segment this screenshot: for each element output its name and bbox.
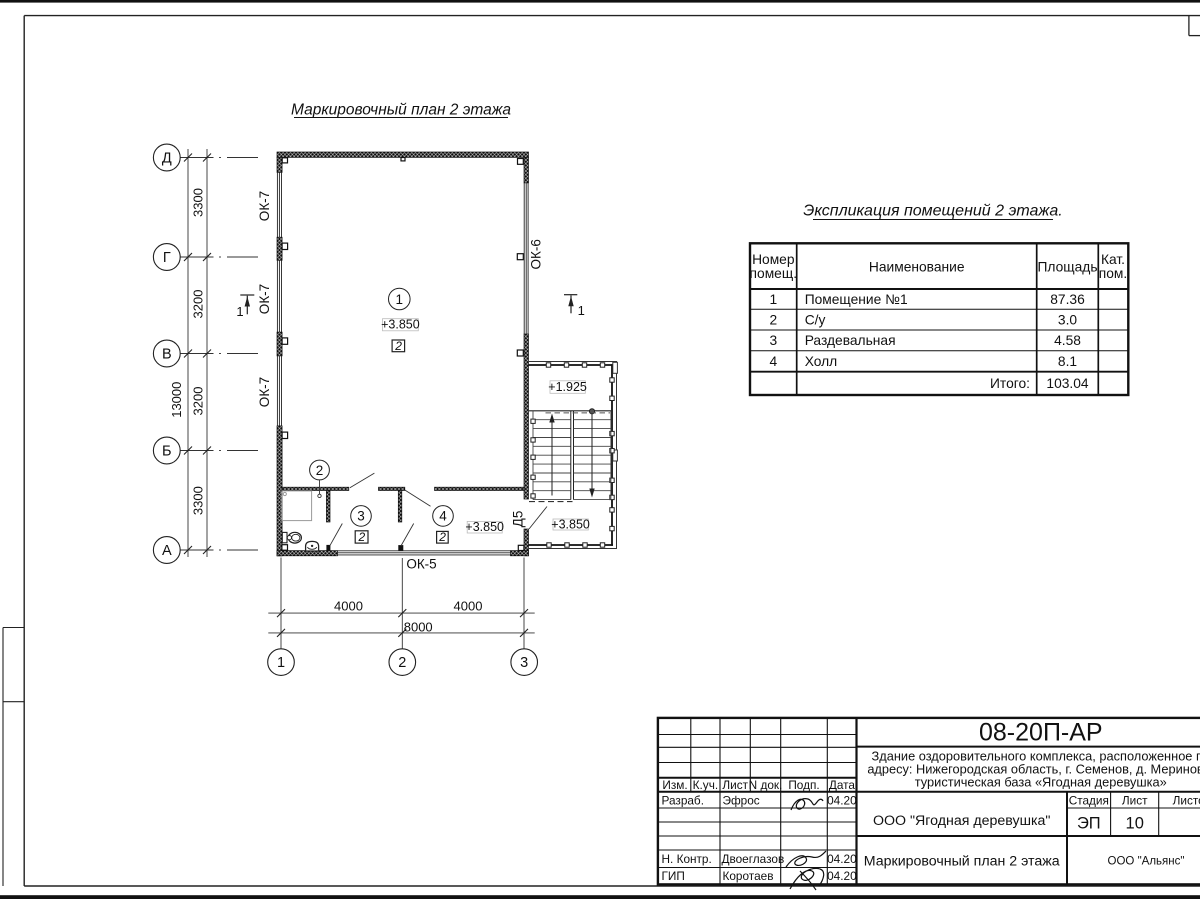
svg-text:пом.: пом. (1099, 266, 1127, 281)
svg-text:Экспликация помещений 2 этажа.: Экспликация помещений 2 этажа. (803, 203, 1062, 220)
svg-text:13000: 13000 (169, 382, 184, 418)
svg-text:1: 1 (578, 303, 585, 318)
svg-text:2: 2 (357, 530, 365, 544)
svg-text:Листов: Листов (1173, 793, 1200, 807)
svg-text:Г: Г (163, 250, 171, 266)
svg-text:Коротаев: Коротаев (723, 869, 774, 883)
svg-text:ОК-7: ОК-7 (257, 191, 272, 221)
svg-text:Эфрос: Эфрос (723, 793, 760, 807)
svg-text:3: 3 (520, 655, 528, 671)
svg-text:Раздевальная: Раздевальная (805, 333, 896, 348)
svg-text:2: 2 (394, 339, 402, 353)
svg-text:Дата: Дата (829, 778, 856, 792)
svg-text:8000: 8000 (404, 620, 433, 635)
svg-text:ОК-7: ОК-7 (257, 377, 272, 407)
svg-text:4: 4 (439, 509, 447, 524)
svg-text:2: 2 (316, 463, 324, 478)
svg-text:+3.850: +3.850 (551, 517, 590, 531)
svg-text:ООО "Ягодная деревушка": ООО "Ягодная деревушка" (873, 813, 1051, 829)
svg-text:87.36: 87.36 (1050, 292, 1085, 307)
svg-text:2: 2 (398, 655, 406, 671)
svg-text:ГИП: ГИП (662, 869, 685, 883)
svg-text:4000: 4000 (454, 599, 483, 614)
svg-text:+3.850: +3.850 (465, 520, 504, 534)
svg-text:04.20: 04.20 (827, 869, 857, 883)
svg-text:3200: 3200 (191, 290, 206, 319)
svg-text:4: 4 (769, 354, 777, 369)
svg-text:1: 1 (769, 292, 777, 307)
svg-text:3300: 3300 (191, 188, 206, 217)
svg-text:Подп.: Подп. (788, 778, 819, 792)
svg-text:04.20: 04.20 (827, 852, 857, 866)
svg-text:10: 10 (1126, 814, 1144, 832)
svg-text:Б: Б (162, 444, 172, 460)
svg-text:3: 3 (769, 333, 777, 348)
svg-text:2: 2 (438, 530, 446, 544)
svg-text:Наименование: Наименование (869, 259, 965, 274)
svg-text:Площадь: Площадь (1037, 259, 1097, 274)
svg-text:А: А (162, 543, 172, 559)
svg-text:ОК-5: ОК-5 (406, 557, 436, 572)
svg-text:Холл: Холл (805, 354, 838, 369)
svg-text:3: 3 (357, 509, 365, 524)
svg-text:Д5: Д5 (511, 511, 526, 528)
svg-text:Кат.: Кат. (1101, 252, 1125, 267)
svg-text:103.04: 103.04 (1046, 376, 1089, 391)
svg-text:1: 1 (277, 655, 285, 671)
svg-text:04.20: 04.20 (827, 793, 857, 807)
svg-text:+1.925: +1.925 (548, 380, 587, 394)
svg-text:3300: 3300 (191, 486, 206, 515)
svg-text:Стадия: Стадия (1069, 793, 1109, 807)
svg-text:Разраб.: Разраб. (662, 793, 704, 807)
svg-text:Н. Контр.: Н. Контр. (662, 852, 712, 866)
svg-text:Номер: Номер (752, 252, 795, 267)
svg-text:08-20П-АР: 08-20П-АР (979, 719, 1103, 747)
svg-text:N док.: N док. (749, 778, 783, 792)
svg-text:+3.850: +3.850 (381, 318, 420, 332)
svg-text:ОК-6: ОК-6 (529, 239, 544, 269)
svg-text:К.уч.: К.уч. (693, 778, 718, 792)
svg-text:Помещение №1: Помещение №1 (805, 292, 908, 307)
svg-text:4.58: 4.58 (1054, 333, 1081, 348)
svg-text:В: В (162, 347, 172, 363)
svg-text:Д: Д (162, 151, 172, 167)
svg-text:Итого:: Итого: (990, 376, 1030, 391)
svg-text:Маркировочный план 2 этажа: Маркировочный план 2 этажа (291, 102, 511, 119)
svg-text:Лист: Лист (1122, 793, 1148, 807)
svg-text:4000: 4000 (334, 599, 363, 614)
svg-text:С/у: С/у (805, 312, 826, 327)
svg-text:Изм.: Изм. (662, 778, 687, 792)
svg-text:3200: 3200 (191, 387, 206, 416)
svg-text:ООО "Альянс": ООО "Альянс" (1108, 856, 1185, 868)
svg-text:ЭП: ЭП (1077, 814, 1101, 832)
svg-text:помещ.: помещ. (750, 266, 798, 281)
svg-text:ОК-7: ОК-7 (257, 284, 272, 314)
svg-text:Лист: Лист (722, 778, 748, 792)
svg-text:Двоеглазов: Двоеглазов (722, 852, 785, 866)
svg-text:3.0: 3.0 (1058, 312, 1078, 327)
svg-text:1: 1 (236, 304, 243, 319)
svg-text:8.1: 8.1 (1058, 354, 1077, 369)
svg-text:туристическая база «Ягодная де: туристическая база «Ягодная деревушка» (915, 775, 1167, 790)
svg-text:Маркировочный план 2 этажа: Маркировочный план 2 этажа (864, 854, 1060, 870)
svg-text:2: 2 (769, 312, 777, 327)
svg-text:1: 1 (396, 292, 404, 307)
